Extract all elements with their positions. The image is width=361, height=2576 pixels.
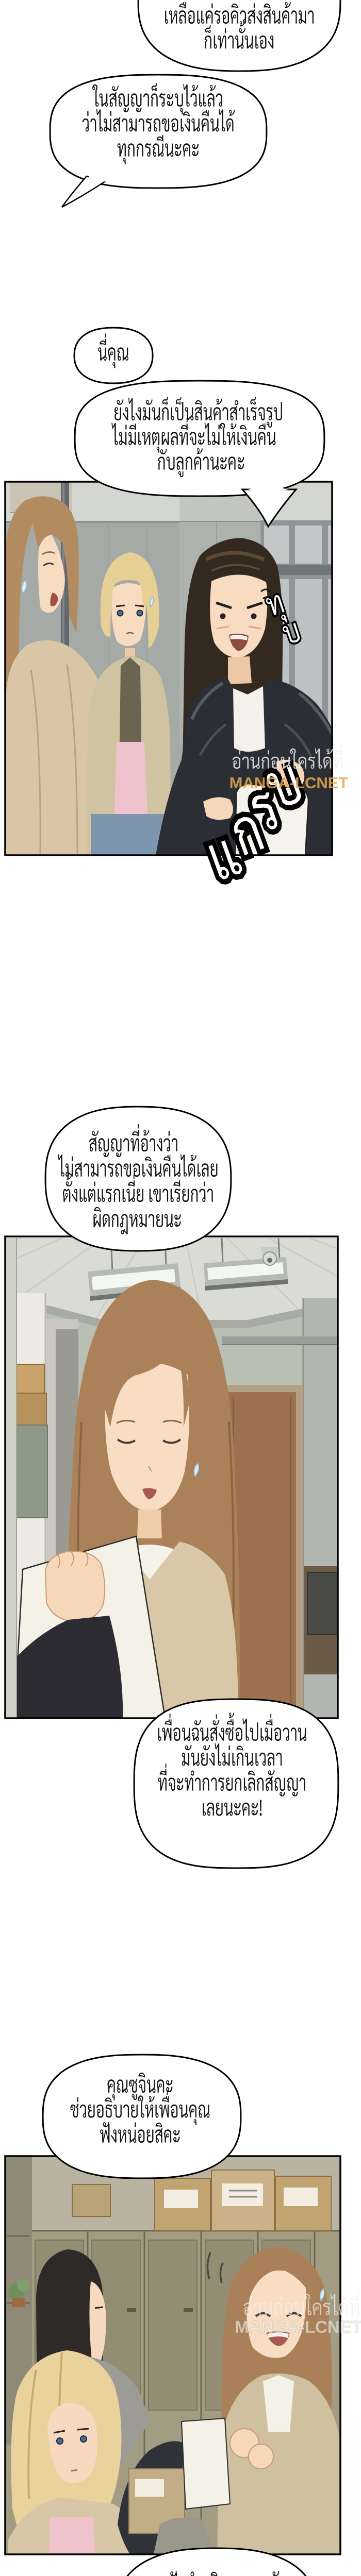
svg-text:MANGA-LCNET: MANGA-LCNET bbox=[229, 774, 349, 792]
svg-text:MANGA-LCNET: MANGA-LCNET bbox=[235, 2317, 361, 2336]
